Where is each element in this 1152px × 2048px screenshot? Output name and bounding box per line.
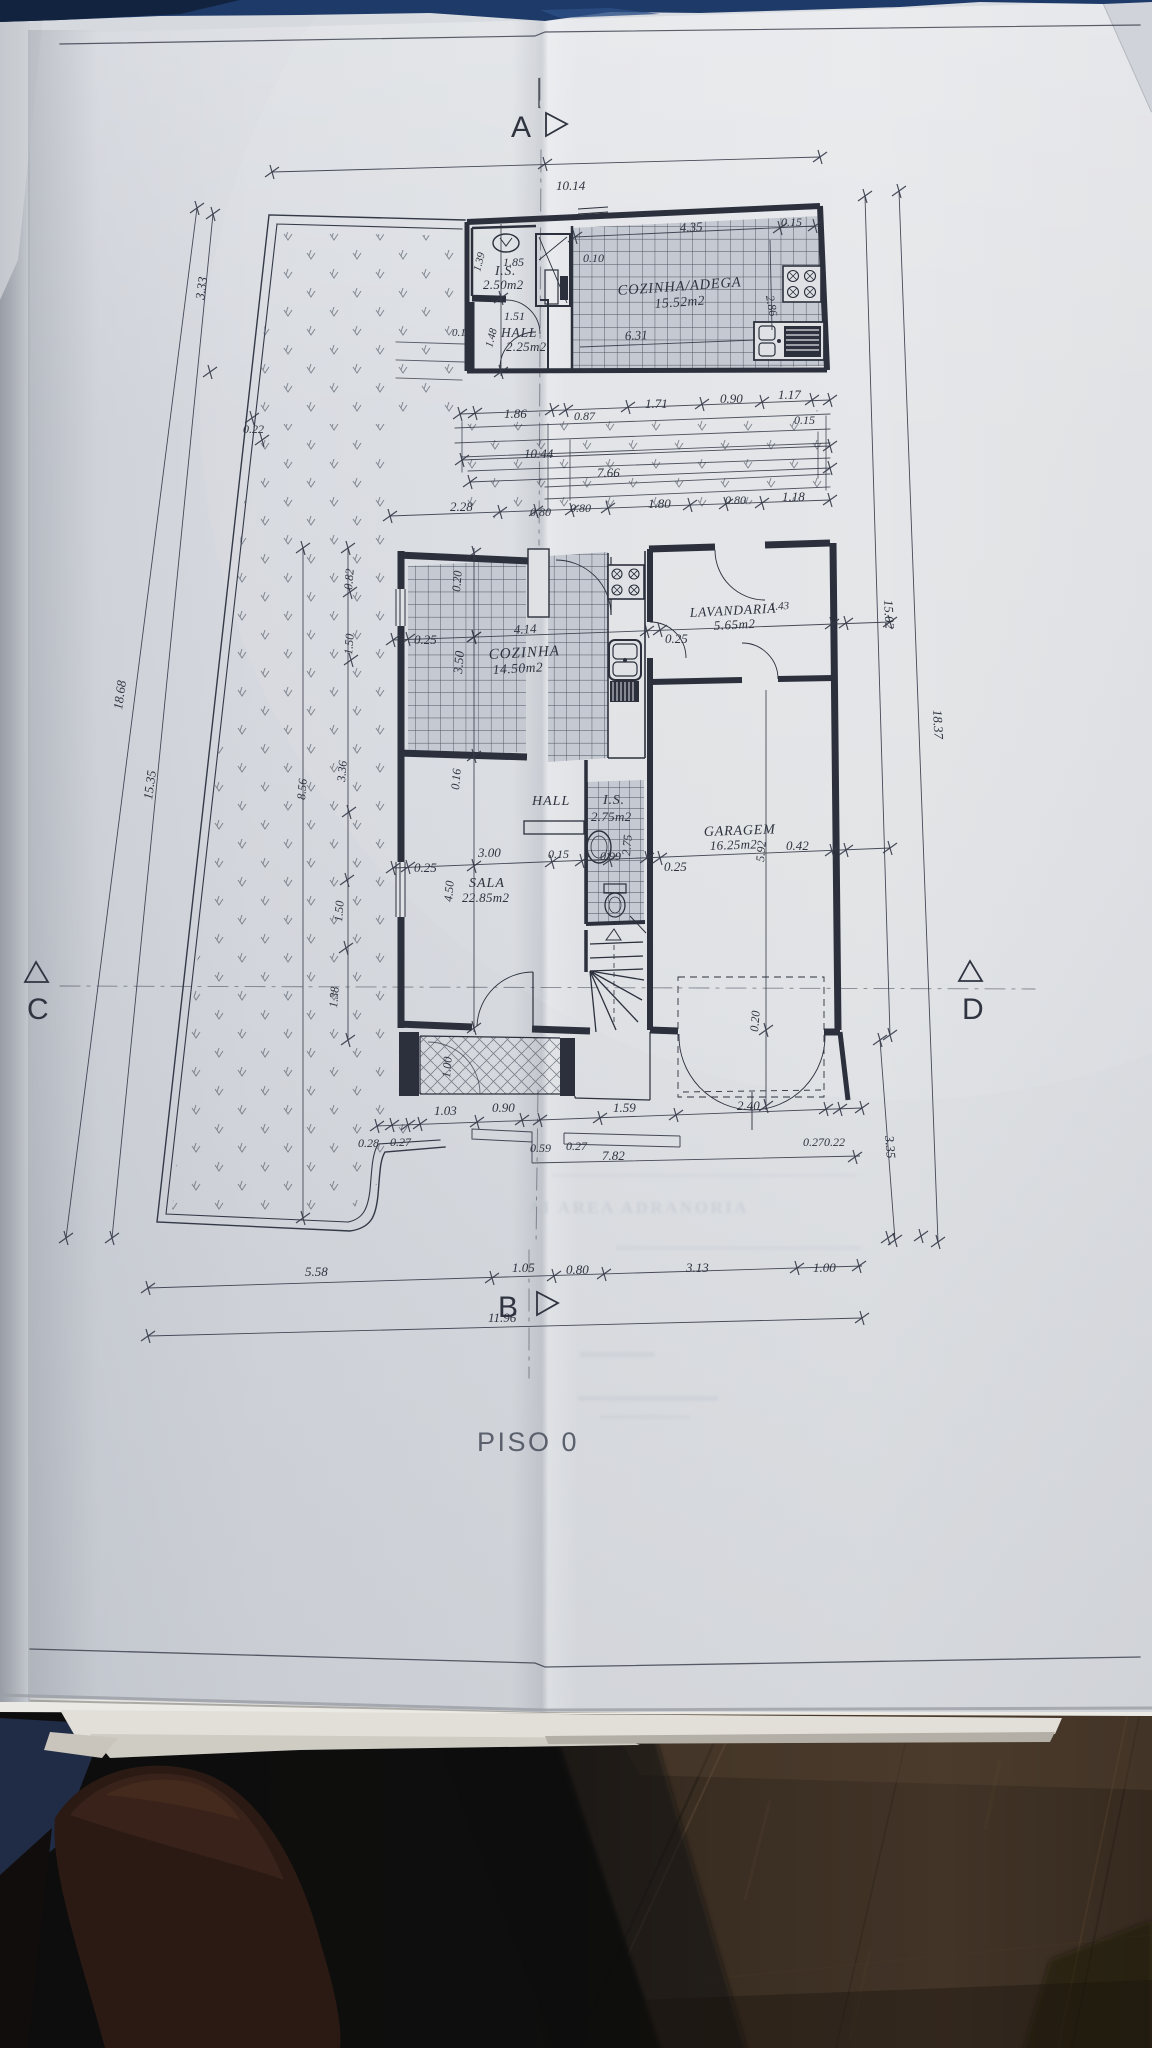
svg-text:3.13: 3.13 xyxy=(685,1260,709,1275)
svg-text:0.20: 0.20 xyxy=(747,1010,763,1032)
svg-text:I.S.: I.S. xyxy=(602,793,625,808)
svg-text:1.50: 1.50 xyxy=(341,633,357,655)
svg-text:1.00: 1.00 xyxy=(439,1056,455,1078)
svg-text:2.40: 2.40 xyxy=(737,1098,760,1113)
svg-text:PISO 0: PISO 0 xyxy=(477,1427,579,1457)
svg-text:0.80: 0.80 xyxy=(566,1262,589,1277)
svg-text:0.82: 0.82 xyxy=(341,568,357,590)
svg-text:1.18: 1.18 xyxy=(782,489,805,504)
svg-text:0.25: 0.25 xyxy=(414,860,437,875)
svg-text:5.92: 5.92 xyxy=(753,840,769,862)
svg-text:0.25: 0.25 xyxy=(414,632,437,647)
svg-text:2.25m2: 2.25m2 xyxy=(506,339,547,354)
svg-text:6.31: 6.31 xyxy=(625,327,648,343)
svg-text:0.87: 0.87 xyxy=(574,409,596,423)
svg-text:1.05: 1.05 xyxy=(512,1260,535,1275)
svg-text:22.85m2: 22.85m2 xyxy=(462,890,509,905)
svg-text:1.43: 1.43 xyxy=(770,600,790,613)
svg-text:A: A xyxy=(511,111,531,144)
svg-text:1.80: 1.80 xyxy=(648,496,671,511)
svg-text:11.96: 11.96 xyxy=(488,1310,517,1325)
svg-text:2.28: 2.28 xyxy=(450,499,473,514)
svg-text:18.37: 18.37 xyxy=(930,709,947,739)
svg-text:3.00: 3.00 xyxy=(477,845,501,860)
svg-text:4.50: 4.50 xyxy=(441,880,457,902)
svg-text:1.71: 1.71 xyxy=(645,396,668,411)
svg-text:0.270.22: 0.270.22 xyxy=(803,1135,845,1149)
svg-text:2.75: 2.75 xyxy=(619,834,635,856)
svg-text:0.59: 0.59 xyxy=(530,1141,551,1155)
svg-text:0.15: 0.15 xyxy=(548,847,569,861)
svg-text:2.75m2: 2.75m2 xyxy=(591,809,632,824)
svg-text:1.17: 1.17 xyxy=(778,387,801,402)
svg-text:1.86: 1.86 xyxy=(504,406,527,421)
svg-text:16.25m2: 16.25m2 xyxy=(710,836,758,853)
svg-text:0.10: 0.10 xyxy=(583,251,604,265)
svg-text:1.03: 1.03 xyxy=(434,1103,457,1118)
svg-text:0.15: 0.15 xyxy=(781,215,802,229)
svg-text:0.80: 0.80 xyxy=(570,501,591,515)
svg-text:0.27: 0.27 xyxy=(566,1139,588,1153)
svg-text:2.50m2: 2.50m2 xyxy=(483,277,524,292)
svg-text:HALL: HALL xyxy=(531,794,570,809)
svg-text:7.66: 7.66 xyxy=(597,465,620,480)
svg-text:3.36: 3.36 xyxy=(334,760,350,783)
svg-text:7.82: 7.82 xyxy=(602,1148,625,1163)
svg-text:0.42: 0.42 xyxy=(786,838,809,853)
svg-text:0.90: 0.90 xyxy=(720,391,743,406)
svg-text:SALA: SALA xyxy=(469,876,505,891)
svg-text:0.28: 0.28 xyxy=(358,1136,379,1150)
svg-text:1.00: 1.00 xyxy=(813,1260,836,1275)
svg-text:1.51: 1.51 xyxy=(504,309,525,323)
svg-text:AI AREA ADRANORIA: AI AREA ADRANORIA xyxy=(528,1198,749,1217)
svg-text:5.58: 5.58 xyxy=(305,1264,328,1279)
svg-text:0.22: 0.22 xyxy=(243,422,264,436)
svg-text:0.80: 0.80 xyxy=(725,493,746,507)
svg-text:C: C xyxy=(27,993,49,1026)
svg-text:0.16: 0.16 xyxy=(448,768,464,790)
svg-text:3.50: 3.50 xyxy=(450,650,467,675)
svg-text:0.15: 0.15 xyxy=(794,413,815,427)
svg-text:5.65m2: 5.65m2 xyxy=(713,616,755,633)
svg-text:1.85: 1.85 xyxy=(503,255,524,269)
svg-text:0.15: 0.15 xyxy=(452,327,472,339)
svg-text:14.50m2: 14.50m2 xyxy=(492,659,543,677)
svg-text:10.14: 10.14 xyxy=(556,178,586,193)
svg-text:0.90: 0.90 xyxy=(492,1100,515,1115)
svg-text:0.25: 0.25 xyxy=(665,631,688,646)
svg-text:0.27: 0.27 xyxy=(390,1135,412,1149)
svg-text:4.14: 4.14 xyxy=(513,621,537,637)
svg-text:0.20: 0.20 xyxy=(449,570,465,592)
svg-text:1.59: 1.59 xyxy=(613,1100,636,1115)
svg-text:8.56: 8.56 xyxy=(294,778,310,800)
svg-text:3.35: 3.35 xyxy=(882,1134,899,1159)
svg-text:D: D xyxy=(962,993,984,1026)
svg-text:0.80: 0.80 xyxy=(530,505,551,519)
svg-text:1.38: 1.38 xyxy=(326,986,342,1008)
svg-text:HALL: HALL xyxy=(500,325,537,340)
svg-text:4.35: 4.35 xyxy=(679,219,703,235)
svg-text:0.99: 0.99 xyxy=(600,849,621,863)
svg-text:0.25: 0.25 xyxy=(664,859,687,874)
svg-text:15.02: 15.02 xyxy=(881,599,898,629)
svg-text:1.50: 1.50 xyxy=(331,900,347,922)
svg-text:10.44: 10.44 xyxy=(524,446,554,461)
